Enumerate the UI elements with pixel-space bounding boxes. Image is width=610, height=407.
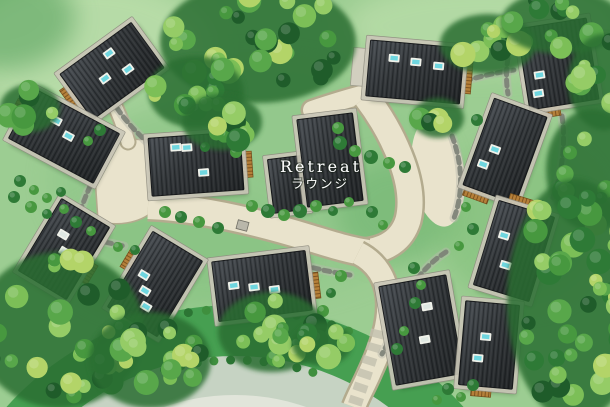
skylight bbox=[435, 64, 443, 69]
bush bbox=[467, 223, 479, 235]
bush bbox=[432, 395, 442, 405]
bush bbox=[8, 191, 20, 203]
bush bbox=[366, 206, 378, 218]
bush bbox=[328, 206, 338, 216]
skylight bbox=[482, 334, 490, 339]
bush bbox=[310, 200, 322, 212]
bush bbox=[454, 241, 464, 251]
bush bbox=[113, 242, 123, 252]
bush bbox=[70, 216, 82, 228]
bush bbox=[193, 216, 205, 228]
hedge-bush bbox=[308, 368, 317, 377]
bush bbox=[42, 209, 52, 219]
bush bbox=[335, 270, 347, 282]
bush bbox=[29, 185, 39, 195]
bush bbox=[399, 161, 411, 173]
hedge-bush bbox=[202, 306, 211, 315]
bush bbox=[246, 200, 258, 212]
bush bbox=[467, 379, 479, 391]
bush bbox=[278, 209, 290, 221]
bush bbox=[349, 145, 361, 157]
skylight bbox=[250, 284, 258, 289]
bush bbox=[175, 211, 187, 223]
lounge-label-en: Retreat bbox=[280, 157, 362, 176]
retreat-map: Retreat ラウンジ bbox=[0, 0, 610, 407]
bush bbox=[83, 136, 93, 146]
skylight bbox=[271, 287, 279, 292]
bush bbox=[399, 326, 409, 336]
bush bbox=[442, 383, 454, 395]
bush bbox=[14, 175, 26, 187]
bush bbox=[364, 150, 378, 164]
bush bbox=[56, 187, 66, 197]
bush bbox=[461, 202, 471, 212]
bush bbox=[212, 222, 224, 234]
bush bbox=[261, 204, 275, 218]
bush bbox=[326, 288, 336, 298]
tree-cluster bbox=[89, 312, 211, 407]
skylight bbox=[172, 145, 180, 150]
bush bbox=[378, 220, 388, 230]
bush bbox=[293, 204, 307, 218]
skylight bbox=[230, 283, 238, 288]
hedge-bush bbox=[184, 308, 193, 317]
bush bbox=[383, 157, 395, 169]
skylight bbox=[183, 145, 191, 150]
bush bbox=[159, 206, 171, 218]
bush bbox=[25, 201, 37, 213]
bush bbox=[86, 226, 96, 236]
skylight bbox=[474, 356, 482, 361]
site-map-illustration: Retreat ラウンジ bbox=[0, 0, 610, 407]
bush bbox=[344, 197, 354, 207]
bush bbox=[416, 280, 426, 290]
bush bbox=[42, 193, 52, 203]
lounge-label-jp: ラウンジ bbox=[291, 176, 349, 191]
bush bbox=[408, 262, 420, 274]
skylight bbox=[200, 170, 208, 175]
bush bbox=[94, 124, 106, 136]
bush bbox=[456, 392, 466, 402]
bush bbox=[409, 297, 421, 309]
bush bbox=[391, 343, 403, 355]
bush bbox=[332, 122, 344, 134]
skylight bbox=[412, 60, 420, 65]
bush bbox=[59, 204, 69, 214]
skylight bbox=[390, 56, 398, 61]
bush bbox=[130, 245, 140, 255]
bush bbox=[471, 114, 483, 126]
bush bbox=[333, 136, 347, 150]
